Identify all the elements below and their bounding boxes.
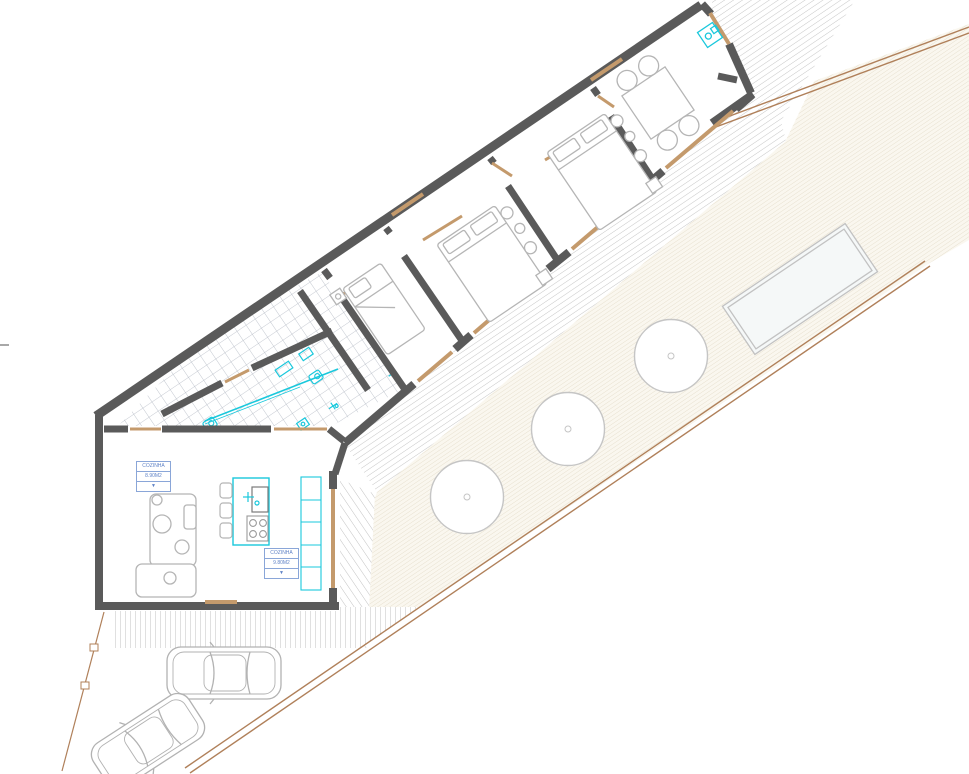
- floor-plan-drawing: [0, 0, 969, 774]
- stove-icon: [247, 516, 268, 541]
- down-arrow-icon: ▼: [265, 569, 298, 578]
- area-label-room-name: COZINHA: [137, 462, 170, 472]
- area-label-kitchen-1: COZINHA 8.90M2 ▼: [136, 461, 171, 492]
- kitchen-island: [220, 478, 269, 545]
- tree: [635, 320, 708, 393]
- area-label-size: 9.80M2: [265, 559, 298, 569]
- paving-strip-front: [112, 607, 418, 648]
- bar-stools: [220, 483, 232, 538]
- area-label-kitchen-2: COZINHA 9.80M2 ▼: [264, 548, 299, 579]
- down-arrow-icon: ▼: [137, 482, 170, 491]
- floor-plan-canvas: COZINHA 8.90M2 ▼ COZINHA 9.80M2 ▼: [0, 0, 969, 774]
- tree: [431, 461, 504, 534]
- area-label-room-name: COZINHA: [265, 549, 298, 559]
- tree: [532, 393, 605, 466]
- area-label-size: 8.90M2: [137, 472, 170, 482]
- shelf-unit: [301, 477, 321, 590]
